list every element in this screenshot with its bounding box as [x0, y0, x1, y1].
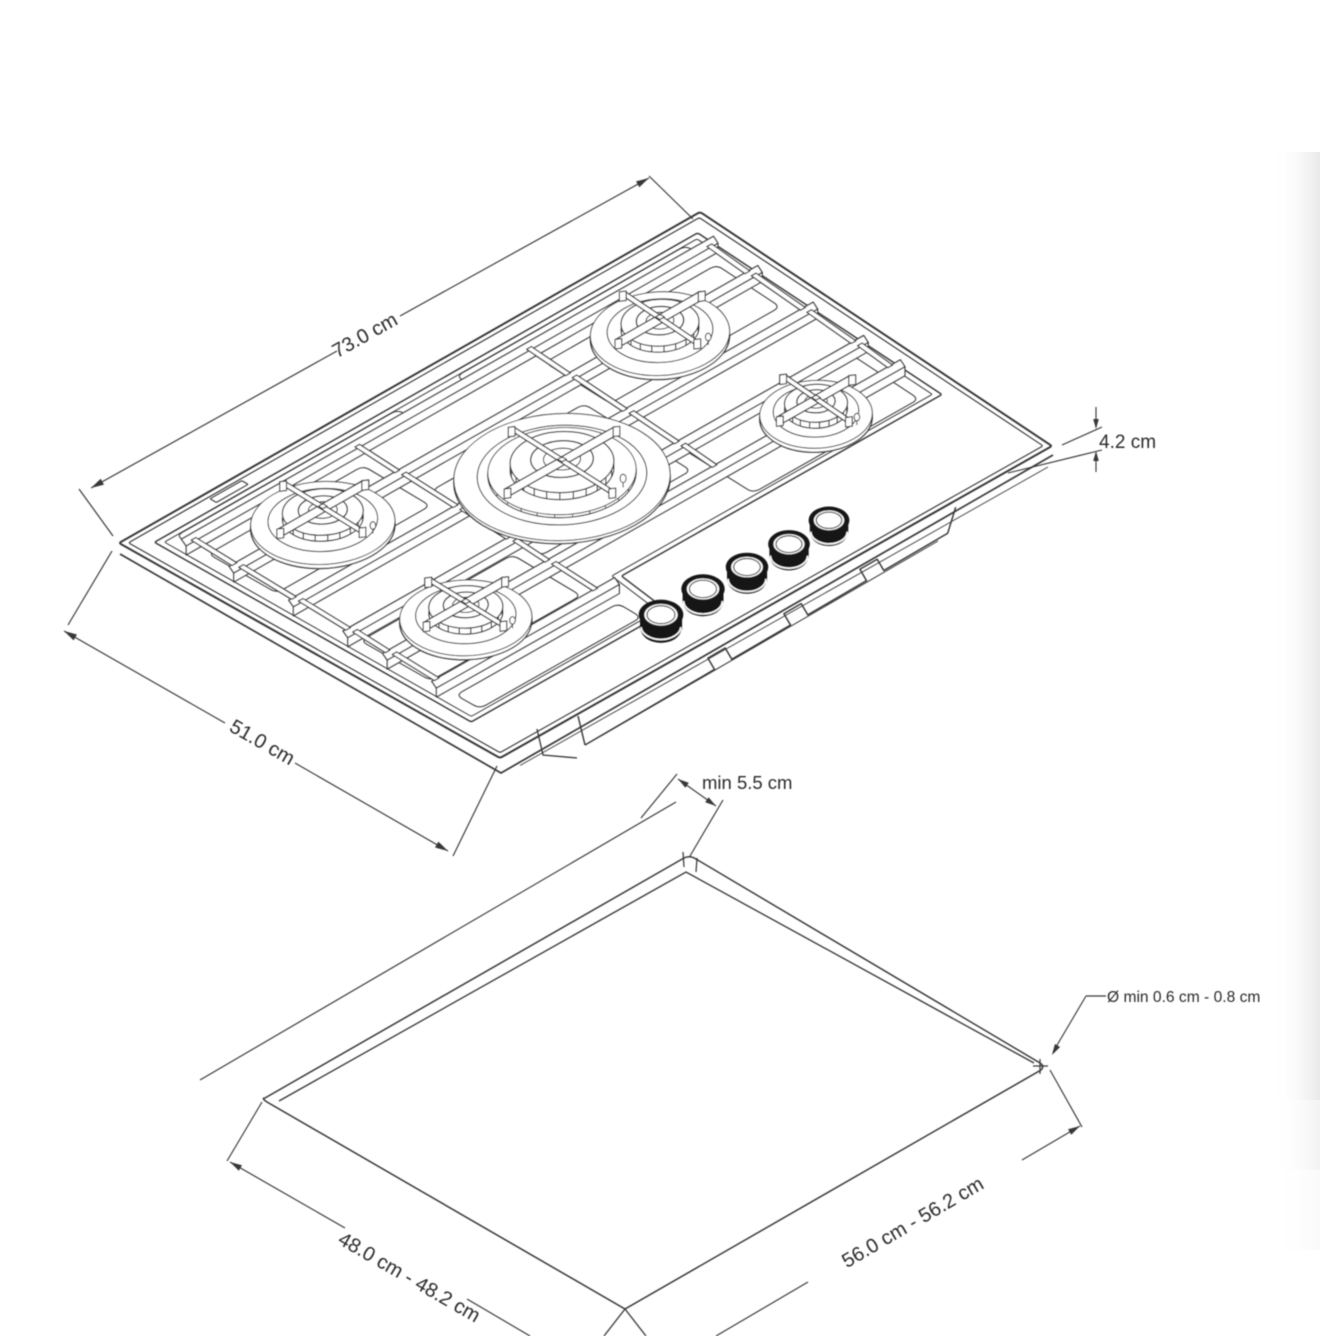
- svg-text:min 5.5 cm: min 5.5 cm: [702, 772, 792, 793]
- svg-text:Ø min 0.6 cm - 0.8 cm: Ø min 0.6 cm - 0.8 cm: [1107, 989, 1260, 1006]
- svg-text:4.2 cm: 4.2 cm: [1099, 432, 1156, 453]
